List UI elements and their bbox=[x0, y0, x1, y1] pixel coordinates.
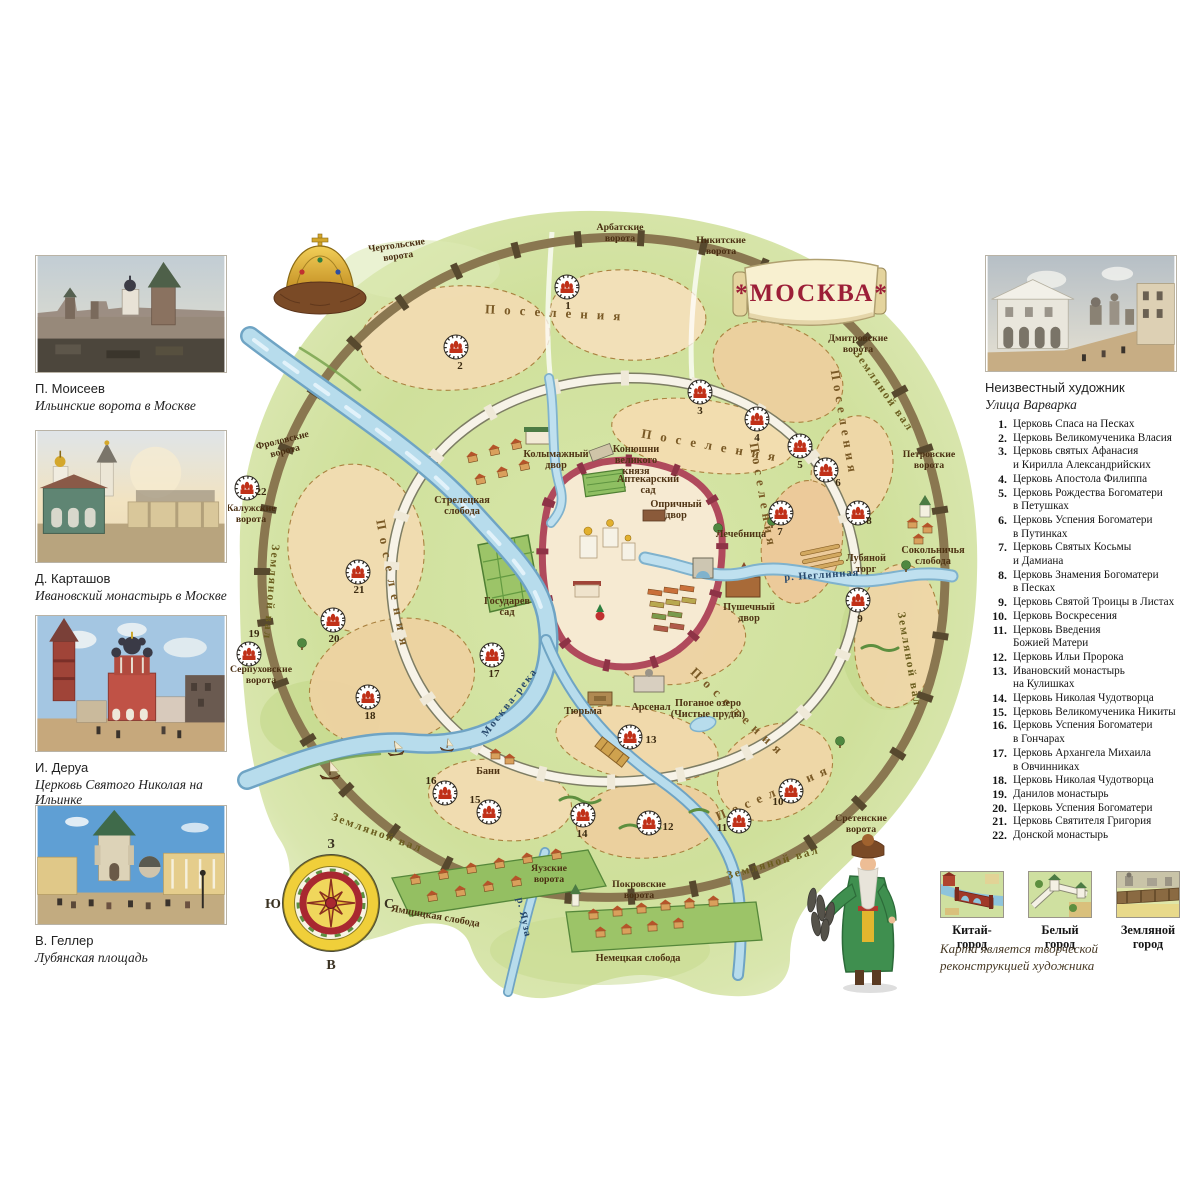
place-label: Тюрьма bbox=[564, 706, 602, 717]
painting-lubyanka-square: В. Геллер Лубянская площадь bbox=[35, 805, 227, 965]
legend-item-text: Церковь Николая Чудотворца bbox=[1013, 774, 1154, 788]
painting-title: Улица Варварка bbox=[985, 397, 1177, 413]
legend-item-text: Церковь святых Афанасияи Кирилла Алексан… bbox=[1013, 445, 1151, 472]
marker-number: 15 bbox=[470, 794, 482, 806]
legend-item-text: Церковь Воскресения bbox=[1013, 610, 1117, 624]
place-label: Арсенал bbox=[631, 702, 671, 713]
painting-artist: И. Деруа bbox=[35, 761, 227, 776]
marker-number: 5 bbox=[797, 459, 803, 471]
moscow-banner: *МОСКВА* bbox=[733, 259, 889, 325]
marker-number: 3 bbox=[697, 405, 703, 417]
legend-item: 20.Церковь Успения Богоматери bbox=[985, 802, 1197, 816]
marker-number: 9 bbox=[857, 613, 863, 625]
legend-item: 13.Ивановский монастырьна Кулишках bbox=[985, 665, 1197, 692]
legend-item: 11.Церковь ВведенияБожией Матери bbox=[985, 624, 1197, 651]
marker-number: 1 bbox=[565, 300, 571, 312]
legend-item: 4.Церковь Апостола Филиппа bbox=[985, 473, 1197, 487]
marker-number: 4 bbox=[754, 432, 760, 444]
bely-gorod-wall-icon bbox=[1028, 871, 1092, 918]
painting-artist: П. Моисеев bbox=[35, 382, 227, 397]
legend-item: 3.Церковь святых Афанасияи Кирилла Алекс… bbox=[985, 445, 1197, 472]
legend-item-text: Церковь Ильи Пророка bbox=[1013, 651, 1124, 665]
legend-item: 8.Церковь Знамения Богоматерив Песках bbox=[985, 569, 1197, 596]
marker-number: 18 bbox=[365, 710, 377, 722]
painting-title: Ильинские ворота в Москве bbox=[35, 398, 227, 414]
legend-item: 12.Церковь Ильи Пророка bbox=[985, 651, 1197, 665]
painting-lubyanka-image bbox=[35, 805, 227, 925]
legend-item-text: Церковь Святителя Григория bbox=[1013, 815, 1151, 829]
legend-item: 2.Церковь Великомученика Власия bbox=[985, 432, 1197, 446]
marker-number: 19 bbox=[249, 628, 261, 640]
compass-west-letter: З bbox=[327, 837, 334, 852]
legend-item-text: Церковь Рождества Богоматерив Петушках bbox=[1013, 487, 1163, 514]
painting-ilyinsky-gate: П. Моисеев Ильинские ворота в Москве bbox=[35, 255, 227, 413]
gate-label: Яузскиеворота bbox=[531, 863, 568, 885]
painting-title: Церковь Святого Николая на Ильинке bbox=[35, 777, 227, 808]
painting-st-nicholas-image bbox=[35, 615, 227, 752]
marker-number: 12 bbox=[663, 821, 675, 833]
marker-number: 21 bbox=[354, 584, 365, 596]
legend-item: 16.Церковь Успения Богоматерив Гончарах bbox=[985, 719, 1197, 746]
legend-item-text: Донской монастырь bbox=[1013, 829, 1108, 843]
place-label: Бани bbox=[476, 766, 500, 777]
marker-number: 8 bbox=[866, 515, 872, 527]
legend-item: 10.Церковь Воскресения bbox=[985, 610, 1197, 624]
legend-item: 9.Церковь Святой Троицы в Листах bbox=[985, 596, 1197, 610]
painting-artist: Д. Карташов bbox=[35, 572, 227, 587]
legend-item-text: Церковь ВведенияБожией Матери bbox=[1013, 624, 1101, 651]
poster-page: П. Моисеев Ильинские ворота в Москве Д. … bbox=[0, 0, 1200, 1200]
legend-item-text: Церковь Спаса на Песках bbox=[1013, 418, 1134, 432]
church-marker-19: 19 bbox=[237, 628, 261, 666]
place-label: Немецкая слобода bbox=[596, 953, 681, 964]
legend-list: 1.Церковь Спаса на Песках2.Церковь Велик… bbox=[985, 418, 1197, 843]
painting-varvarka-image bbox=[985, 255, 1177, 372]
wall-legend-bely-gorod: Белый город bbox=[1028, 871, 1092, 951]
banner-title: *МОСКВА* bbox=[735, 280, 889, 307]
marker-number: 7 bbox=[777, 526, 783, 538]
marker-number: 11 bbox=[717, 822, 727, 834]
legend-item-text: Церковь Великомученика Власия bbox=[1013, 432, 1172, 446]
painting-ivanovsky-monastery: Д. Карташов Ивановский монастырь в Москв… bbox=[35, 430, 227, 603]
marker-number: 14 bbox=[577, 828, 589, 840]
marker-number: 20 bbox=[329, 633, 341, 645]
wall-legend-label: Земляной город bbox=[1116, 924, 1180, 951]
legend-item-text: Церковь Святой Троицы в Листах bbox=[1013, 596, 1174, 610]
painting-ilyinsky-gate-image bbox=[35, 255, 227, 373]
marker-number: 22 bbox=[256, 486, 268, 498]
legend-item-text: Данилов монастырь bbox=[1013, 788, 1109, 802]
compass-east-letter: В bbox=[326, 958, 335, 973]
painting-st-nicholas-church: И. Деруа Церковь Святого Николая на Ильи… bbox=[35, 615, 227, 808]
legend-item-text: Церковь Успения Богоматерив Гончарах bbox=[1013, 719, 1153, 746]
legend-item: 18.Церковь Николая Чудотворца bbox=[985, 774, 1197, 788]
legend-item: 14.Церковь Николая Чудотворца bbox=[985, 692, 1197, 706]
legend-item: 21.Церковь Святителя Григория bbox=[985, 815, 1197, 829]
legend-item: 6.Церковь Успения Богоматерив Путинках bbox=[985, 514, 1197, 541]
legend-item-text: Церковь Успения Богоматери bbox=[1013, 802, 1153, 816]
moscow-map: *МОСКВА* З С В Ю bbox=[228, 195, 990, 1010]
legend-item: 7.Церковь Святых Косьмыи Дамиана bbox=[985, 541, 1197, 568]
legend-item-text: Ивановский монастырьна Кулишках bbox=[1013, 665, 1125, 692]
legend-item-text: Церковь Святых Косьмыи Дамиана bbox=[1013, 541, 1131, 568]
legend-item: 5.Церковь Рождества Богоматерив Петушках bbox=[985, 487, 1197, 514]
place-label: Лечебница bbox=[716, 529, 766, 540]
legend-item: 15.Церковь Великомученика Никиты bbox=[985, 706, 1197, 720]
legend-item-text: Церковь Великомученика Никиты bbox=[1013, 706, 1176, 720]
marker-number: 6 bbox=[835, 477, 841, 489]
wall-legend-zemlyanoy-gorod: Земляной город bbox=[1116, 871, 1180, 951]
legend-item: 17.Церковь Архангела Михаилав Овчинниках bbox=[985, 747, 1197, 774]
painting-artist: В. Геллер bbox=[35, 934, 227, 949]
painting-title: Ивановский монастырь в Москве bbox=[35, 588, 227, 604]
zemlyanoy-gorod-wall-icon bbox=[1116, 871, 1180, 918]
legend-item-text: Церковь Николая Чудотворца bbox=[1013, 692, 1154, 706]
painting-varvarka-street: Неизвестный художник Улица Варварка bbox=[985, 255, 1177, 412]
marker-number: 17 bbox=[489, 668, 501, 680]
place-label: Поганое озеро(Чистые пруды) bbox=[671, 698, 745, 720]
marker-number: 13 bbox=[646, 734, 658, 746]
painting-ivanovsky-image bbox=[35, 430, 227, 563]
marker-number: 2 bbox=[457, 360, 463, 372]
legend-item: 22.Донской монастырь bbox=[985, 829, 1197, 843]
legend-item-text: Церковь Апостола Филиппа bbox=[1013, 473, 1147, 487]
legend-item: 19.Данилов монастырь bbox=[985, 788, 1197, 802]
painting-title: Лубянская площадь bbox=[35, 950, 227, 966]
legend-item-text: Церковь Знамения Богоматерив Песках bbox=[1013, 569, 1159, 596]
marker-number: 16 bbox=[426, 775, 438, 787]
compass-south-letter: Ю bbox=[265, 897, 281, 912]
marker-number: 10 bbox=[773, 796, 785, 808]
legend-item-text: Церковь Архангела Михаилав Овчинниках bbox=[1013, 747, 1151, 774]
legend-item-text: Церковь Успения Богоматерив Путинках bbox=[1013, 514, 1153, 541]
painting-artist: Неизвестный художник bbox=[985, 381, 1177, 396]
legend-item: 1.Церковь Спаса на Песках bbox=[985, 418, 1197, 432]
